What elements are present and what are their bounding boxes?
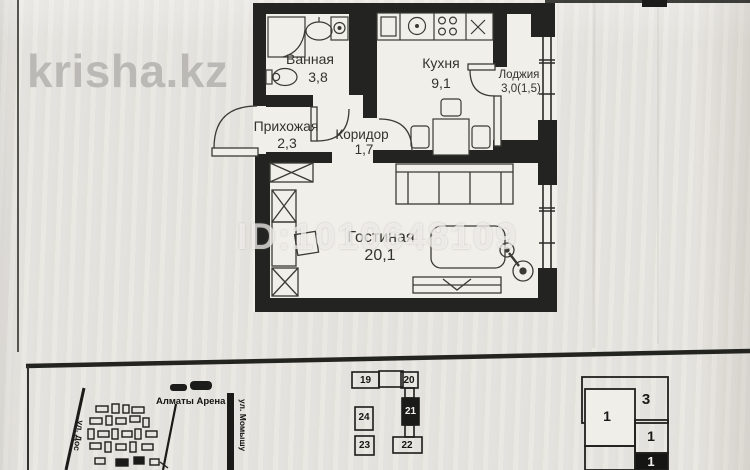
svg-text:2,3: 2,3 <box>277 135 297 151</box>
map-building-cluster <box>88 404 168 468</box>
building-connector <box>405 388 414 398</box>
unit-plan: 3 1 1 1 <box>582 377 668 470</box>
svg-text:9,1: 9,1 <box>431 75 451 91</box>
building-19: 19 <box>352 372 379 388</box>
kitchen-counter <box>377 13 493 40</box>
car-icon <box>170 381 212 391</box>
svg-text:Прихожая: Прихожая <box>254 118 319 134</box>
listing-id-watermark: ID:1010648109 <box>237 216 518 258</box>
svg-text:19: 19 <box>360 375 372 386</box>
svg-text:20: 20 <box>403 375 415 386</box>
arena-label: Алматы Арена <box>156 396 226 407</box>
svg-text:1: 1 <box>603 408 611 424</box>
svg-text:1: 1 <box>647 428 655 444</box>
unit-1-left: 1 <box>585 389 635 446</box>
svg-text:3: 3 <box>642 391 650 408</box>
svg-text:Кухня: Кухня <box>422 55 459 71</box>
site-plan: 19 20 21 22 24 23 <box>352 371 422 455</box>
map-road-momyshuly <box>227 393 234 470</box>
svg-text:Коридор: Коридор <box>335 127 388 142</box>
building-23: 23 <box>355 436 374 455</box>
svg-text:1: 1 <box>647 454 654 469</box>
dining-table <box>433 119 469 155</box>
svg-text:Лоджия: Лоджия <box>499 69 540 81</box>
street-label-left: ул. Дос <box>72 420 86 452</box>
svg-text:22: 22 <box>401 440 413 451</box>
sofa <box>396 164 513 204</box>
svg-text:1,7: 1,7 <box>355 142 374 157</box>
building-21-highlighted: 21 <box>402 398 419 425</box>
floor-plan-photo: Ванная 3,8 Кухня 9,1 Лоджия 3,0(1,5) При… <box>0 0 750 470</box>
svg-text:23: 23 <box>359 440 371 451</box>
floor-plan: Ванная 3,8 Кухня 9,1 Лоджия 3,0(1,5) При… <box>212 3 557 312</box>
unit-1-highlighted: 1 <box>635 453 668 470</box>
street-label-momyshuly: ул. Момышу <box>238 399 248 452</box>
unit-empty <box>585 446 635 470</box>
svg-text:21: 21 <box>405 406 417 417</box>
svg-text:Ванная: Ванная <box>286 51 334 67</box>
entry-door <box>212 106 258 156</box>
building-20: 20 <box>401 372 418 388</box>
map-road-cluster-edge <box>163 404 176 470</box>
building-24: 24 <box>355 407 373 430</box>
svg-text:3,0(1,5): 3,0(1,5) <box>501 83 541 95</box>
svg-text:3,8: 3,8 <box>308 69 328 85</box>
building-unlabeled <box>379 371 403 387</box>
location-map: Алматы Арена ул. Момышу ул. Дос <box>66 381 248 470</box>
svg-text:24: 24 <box>358 412 370 423</box>
building-22: 22 <box>393 437 422 453</box>
unit-1-right: 1 <box>635 420 668 453</box>
krisha-watermark: krisha.kz <box>27 44 228 98</box>
building-connector <box>405 425 414 437</box>
